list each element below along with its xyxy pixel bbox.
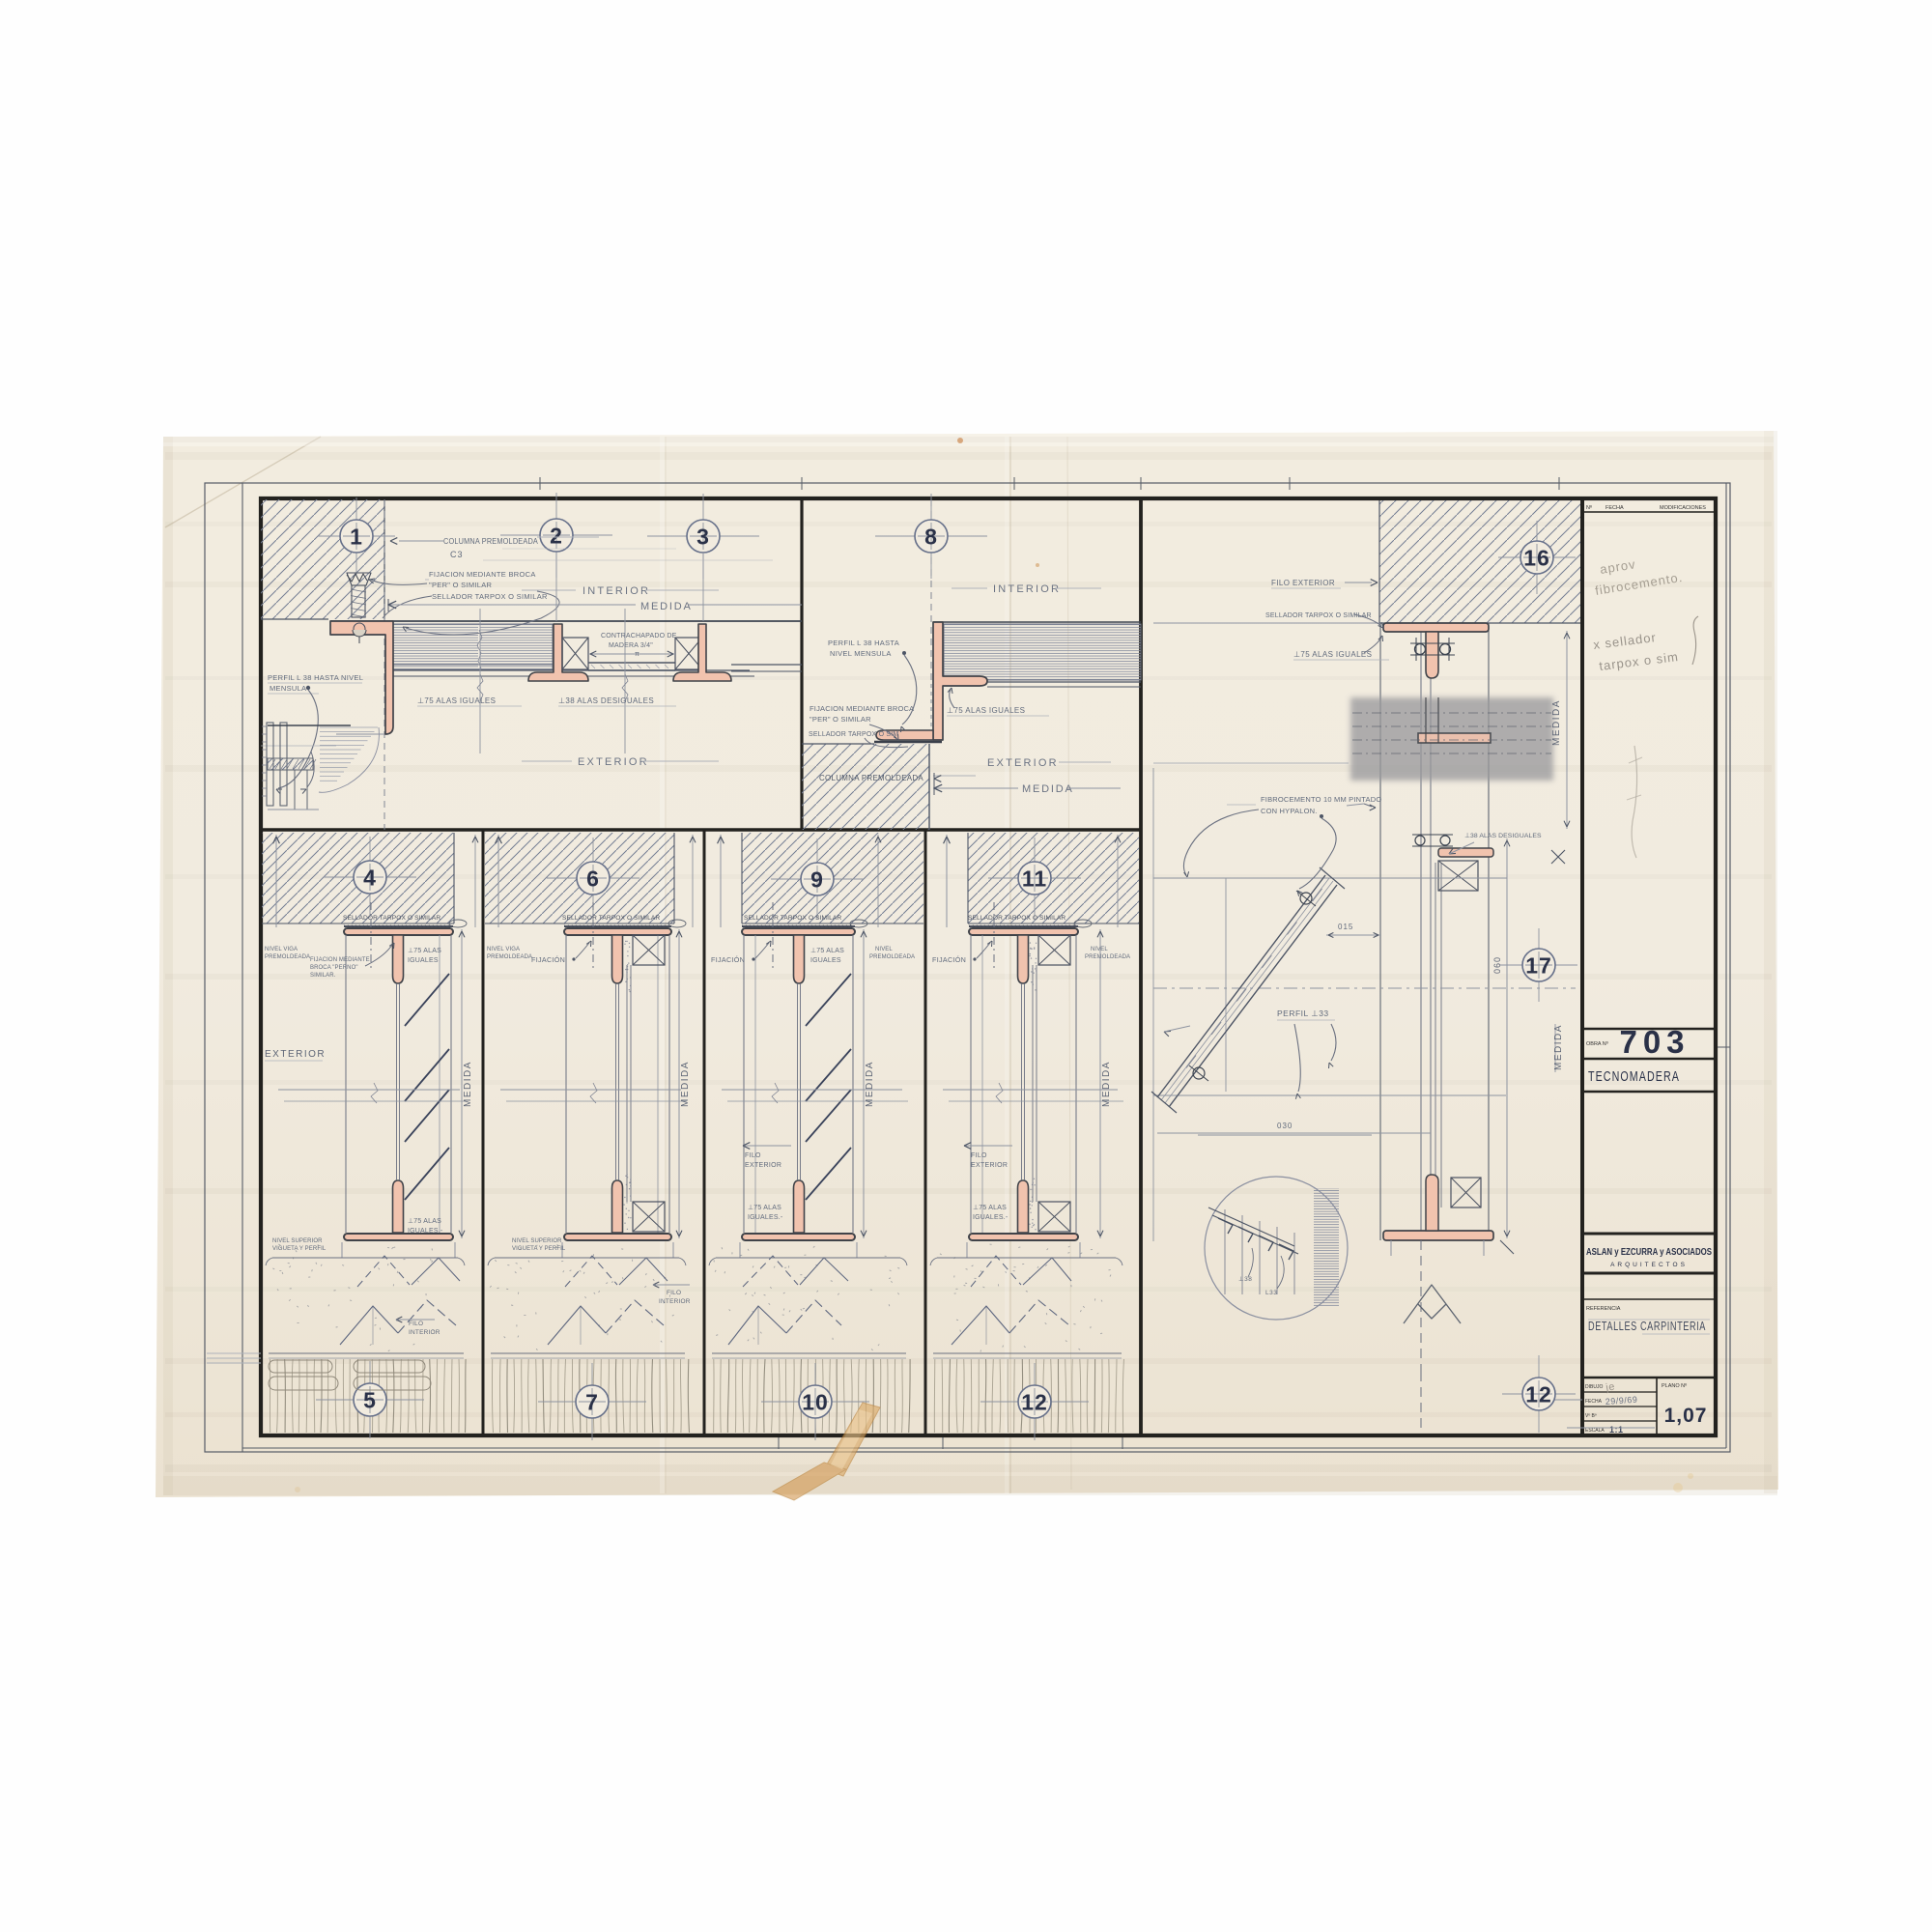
svg-text:MENSULA: MENSULA — [270, 684, 306, 693]
svg-text:Vº Bº: Vº Bº — [1585, 1413, 1597, 1419]
svg-text:REFERENCIA: REFERENCIA — [1586, 1306, 1621, 1312]
svg-text:L33: L33 — [1265, 1290, 1277, 1296]
svg-text:FIJACIÓN: FIJACIÓN — [531, 955, 565, 964]
svg-text:17: 17 — [1525, 952, 1552, 978]
svg-text:EXTERIOR: EXTERIOR — [265, 1049, 326, 1060]
svg-text:⊥75 ALAS: ⊥75 ALAS — [408, 1218, 441, 1225]
svg-text:SELLADOR TARPOX O SIMILAR: SELLADOR TARPOX O SIMILAR — [343, 915, 440, 922]
svg-text:FECHA: FECHA — [1605, 505, 1624, 511]
svg-text:ESCALA: ESCALA — [1585, 1428, 1605, 1434]
svg-text:703: 703 — [1619, 1024, 1690, 1060]
svg-text:PERFIL ⊥33: PERFIL ⊥33 — [1277, 1009, 1329, 1018]
svg-text:IGUALES.-: IGUALES.- — [748, 1214, 783, 1221]
svg-text:FILO EXTERIOR: FILO EXTERIOR — [1271, 579, 1335, 587]
svg-text:INTERIOR: INTERIOR — [582, 585, 650, 597]
svg-text:⊥75 ALAS IGUALES: ⊥75 ALAS IGUALES — [417, 696, 496, 705]
svg-text:6: 6 — [586, 866, 600, 891]
svg-text:4: 4 — [363, 865, 377, 890]
svg-text:SELLADOR TARPOX O SIMILAR: SELLADOR TARPOX O SIMILAR — [1265, 612, 1372, 619]
svg-text:2: 2 — [550, 523, 563, 548]
svg-text:NIVEL: NIVEL — [1091, 947, 1108, 952]
svg-text:IGUALES.-: IGUALES.- — [408, 1228, 443, 1235]
svg-text:SELLADOR TARPOX O SIMILAR: SELLADOR TARPOX O SIMILAR — [968, 915, 1065, 922]
svg-text:FILO: FILO — [409, 1321, 423, 1327]
svg-text:SELLADOR TARPOX O SIMILAR: SELLADOR TARPOX O SIMILAR — [432, 592, 548, 601]
svg-text:TECNOMADERA: TECNOMADERA — [1588, 1068, 1680, 1085]
svg-text:FIJACIÓN: FIJACIÓN — [932, 955, 966, 964]
svg-text:MEDIDA: MEDIDA — [865, 1061, 875, 1107]
svg-text:INTERIOR: INTERIOR — [993, 583, 1061, 595]
svg-text:BROCA "PERNO": BROCA "PERNO" — [310, 965, 358, 971]
svg-text:NIVEL VIGA: NIVEL VIGA — [487, 947, 520, 952]
svg-text:FILO: FILO — [745, 1152, 761, 1159]
svg-text:PREMOLDEADA: PREMOLDEADA — [1085, 954, 1130, 960]
svg-text:MEDIDA: MEDIDA — [1553, 1024, 1564, 1070]
svg-text:EXTERIOR: EXTERIOR — [745, 1162, 781, 1169]
svg-text:8: 8 — [924, 524, 938, 549]
svg-text:VIGUETA Y PERFIL: VIGUETA Y PERFIL — [272, 1246, 327, 1252]
svg-text:FECHA: FECHA — [1585, 1399, 1603, 1405]
svg-text:⊥75 ALAS IGUALES: ⊥75 ALAS IGUALES — [1293, 650, 1372, 659]
svg-text:11: 11 — [1022, 866, 1047, 891]
svg-text:FILO: FILO — [667, 1290, 681, 1296]
svg-text:INTERIOR: INTERIOR — [409, 1329, 440, 1336]
svg-text:je: je — [1604, 1380, 1615, 1394]
svg-text:⊥75 ALAS: ⊥75 ALAS — [408, 948, 441, 954]
svg-text:⊥38: ⊥38 — [1238, 1276, 1252, 1283]
svg-text:1,07: 1,07 — [1664, 1405, 1708, 1427]
svg-text:EXTERIOR: EXTERIOR — [578, 756, 649, 768]
svg-text:NIVEL SUPERIOR: NIVEL SUPERIOR — [512, 1238, 562, 1244]
svg-text:C3: C3 — [450, 550, 464, 559]
svg-text:⊥75 ALAS: ⊥75 ALAS — [748, 1205, 781, 1211]
svg-text:16: 16 — [1523, 545, 1550, 570]
svg-text:NIVEL MENSULA: NIVEL MENSULA — [830, 649, 892, 658]
svg-text:MADERA 3/4": MADERA 3/4" — [609, 642, 653, 649]
svg-text:CON HYPALON.: CON HYPALON. — [1261, 807, 1318, 815]
svg-text:MEDIDA: MEDIDA — [680, 1061, 691, 1107]
svg-text:FIJACION MEDIANTE: FIJACION MEDIANTE — [310, 957, 370, 963]
svg-text:⊥75 ALAS: ⊥75 ALAS — [810, 948, 844, 954]
svg-text:FIJACION MEDIANTE BROCA: FIJACION MEDIANTE BROCA — [810, 704, 914, 713]
svg-text:COLUMNA PREMOLDEADA: COLUMNA PREMOLDEADA — [443, 537, 538, 546]
svg-text:SIMILAR.: SIMILAR. — [310, 973, 336, 979]
svg-text:MEDIDA: MEDIDA — [463, 1061, 473, 1107]
svg-text:COLUMNA PREMOLDEADA: COLUMNA PREMOLDEADA — [819, 773, 923, 782]
svg-text:IGUALES: IGUALES — [408, 957, 439, 964]
svg-text:3: 3 — [696, 524, 710, 549]
svg-text:PREMOLDEADA: PREMOLDEADA — [869, 954, 915, 960]
svg-text:1: 1 — [350, 524, 363, 549]
svg-text:⊥38 ALAS DESIGUALES: ⊥38 ALAS DESIGUALES — [558, 696, 654, 705]
svg-text:PERFIL L 38 HASTA NIVEL: PERFIL L 38 HASTA NIVEL — [268, 673, 363, 682]
svg-text:MEDIDA: MEDIDA — [1022, 783, 1074, 795]
svg-text:MEDIDA: MEDIDA — [1101, 1061, 1112, 1107]
svg-text:ASLAN y EZCURRA y ASOCIADOS: ASLAN y EZCURRA y ASOCIADOS — [1586, 1246, 1712, 1258]
svg-text:⊥38 ALAS DESIGUALES: ⊥38 ALAS DESIGUALES — [1464, 833, 1542, 839]
svg-text:PREMOLDEADA: PREMOLDEADA — [265, 954, 310, 960]
svg-text:FIBROCEMENTO 10 MM PINTADO: FIBROCEMENTO 10 MM PINTADO — [1261, 795, 1381, 804]
svg-text:IGUALES.-: IGUALES.- — [973, 1214, 1009, 1221]
svg-text:"PER" O SIMILAR: "PER" O SIMILAR — [429, 581, 493, 589]
svg-text:INTERIOR: INTERIOR — [659, 1298, 691, 1305]
svg-text:FILO: FILO — [971, 1152, 987, 1159]
svg-text:OBRA Nº: OBRA Nº — [1586, 1040, 1608, 1047]
svg-text:EXTERIOR: EXTERIOR — [987, 757, 1059, 769]
svg-text:PLANO Nº: PLANO Nº — [1662, 1382, 1687, 1389]
svg-text:12: 12 — [1021, 1389, 1048, 1414]
svg-text:9: 9 — [810, 867, 824, 892]
svg-text:MEDIDA: MEDIDA — [1551, 699, 1562, 746]
svg-text:FIJACIÓN: FIJACIÓN — [711, 955, 745, 964]
svg-text:SELLADOR TARPOX O SIMILAR: SELLADOR TARPOX O SIMILAR — [562, 915, 660, 922]
svg-text:EXTERIOR: EXTERIOR — [971, 1162, 1008, 1169]
svg-text:NIVEL SUPERIOR: NIVEL SUPERIOR — [272, 1238, 323, 1244]
svg-text:DIBUJO: DIBUJO — [1585, 1384, 1603, 1390]
svg-text:MEDIDA: MEDIDA — [640, 601, 693, 612]
svg-text:ARQUITECTOS: ARQUITECTOS — [1610, 1262, 1688, 1268]
svg-text:IGUALES: IGUALES — [810, 957, 841, 964]
svg-text:MODIFICACIONES: MODIFICACIONES — [1660, 505, 1706, 511]
svg-text:PREMOLDEADA: PREMOLDEADA — [487, 954, 532, 960]
svg-text:"PER" O SIMILAR: "PER" O SIMILAR — [810, 715, 871, 724]
svg-text:030: 030 — [1277, 1122, 1293, 1130]
svg-text:1:1: 1:1 — [1609, 1425, 1624, 1435]
svg-text:FIJACION MEDIANTE BROCA: FIJACION MEDIANTE BROCA — [429, 570, 536, 579]
svg-text:10: 10 — [802, 1389, 829, 1414]
svg-text:7: 7 — [585, 1389, 599, 1414]
svg-text:Nº: Nº — [1586, 504, 1592, 511]
svg-text:PERFIL L 38 HASTA: PERFIL L 38 HASTA — [828, 639, 899, 647]
svg-text:015: 015 — [1338, 923, 1353, 931]
svg-text:π: π — [635, 651, 639, 658]
svg-text:SELLADOR TARPOX O SIMILAR: SELLADOR TARPOX O SIMILAR — [744, 915, 841, 922]
svg-text:CONTRACHAPADO DE: CONTRACHAPADO DE — [601, 633, 677, 639]
svg-text:⊥75 ALAS IGUALES: ⊥75 ALAS IGUALES — [947, 706, 1025, 715]
svg-text:⊥75 ALAS: ⊥75 ALAS — [973, 1205, 1007, 1211]
svg-text:DETALLES CARPINTERIA: DETALLES CARPINTERIA — [1588, 1320, 1706, 1333]
svg-text:12: 12 — [1525, 1381, 1552, 1406]
svg-text:SELLADOR TARPOX O SIM: SELLADOR TARPOX O SIM — [809, 731, 898, 738]
svg-text:NIVEL VIGA: NIVEL VIGA — [265, 947, 298, 952]
svg-text:NIVEL: NIVEL — [875, 947, 893, 952]
svg-text:5: 5 — [363, 1387, 377, 1412]
